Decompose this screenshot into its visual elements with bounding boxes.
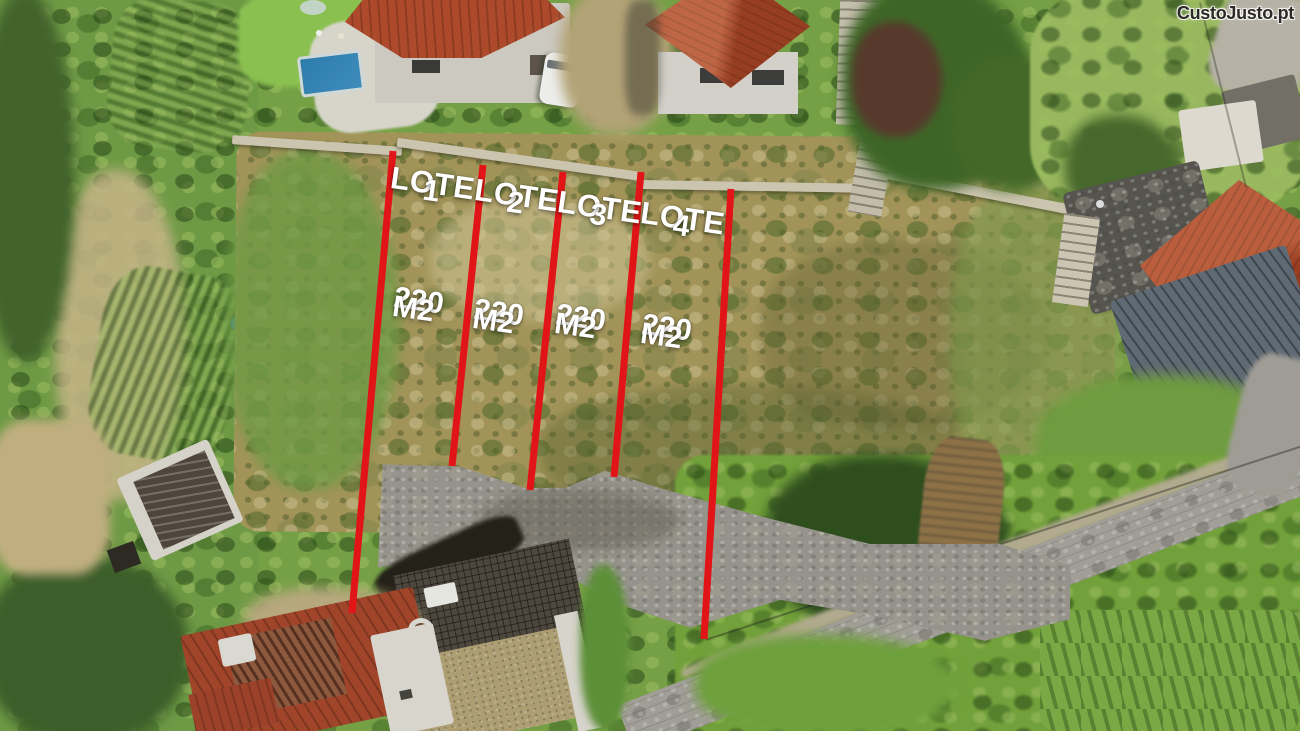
custojusto-watermark: CustoJusto.pt [1177,3,1294,24]
lot-boundary-line [704,189,731,639]
lot-1-area-unit: M2 [391,292,436,328]
lot-2-area-unit: M2 [471,304,516,340]
lot-boundary-line [352,151,393,613]
aerial-photo: LOTE 1 LOTE 2 LOTE 3 LOTE 4 220 M2 220 M… [0,0,1300,731]
lot-boundary-lines [0,0,1300,731]
lot-3-area-unit: M2 [553,309,598,345]
lot-4-area-unit: M2 [639,319,684,355]
